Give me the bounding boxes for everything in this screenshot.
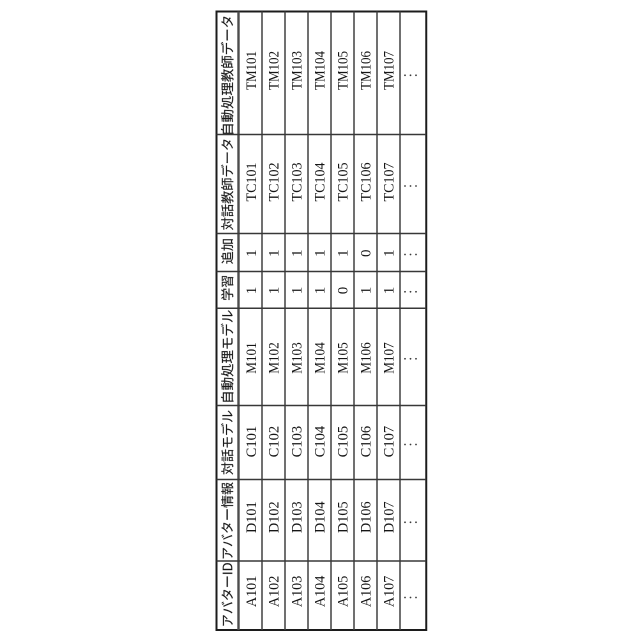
svg-text:M103: M103 [289,342,305,374]
svg-text:M101: M101 [244,342,260,374]
svg-text:A101: A101 [244,576,260,608]
svg-text:TC102: TC102 [266,163,282,202]
svg-text:1: 1 [381,287,397,295]
svg-text:D106: D106 [358,501,374,533]
svg-text:1: 1 [244,249,260,257]
svg-text:1: 1 [289,287,305,295]
svg-text:C103: C103 [289,426,305,458]
svg-text:D105: D105 [335,501,351,533]
svg-text:D101: D101 [244,501,260,533]
svg-text:C102: C102 [266,426,282,458]
svg-text:A104: A104 [312,575,328,607]
svg-text:TM105: TM105 [335,51,351,90]
svg-text:A103: A103 [289,576,305,608]
svg-text:0: 0 [335,287,351,295]
svg-text:C107: C107 [381,425,397,457]
svg-text:TC104: TC104 [312,162,328,201]
svg-text:A107: A107 [381,575,397,607]
svg-text:C105: C105 [335,426,351,458]
svg-text:D103: D103 [289,501,305,533]
svg-text:TM103: TM103 [289,51,305,90]
svg-text:TM106: TM106 [358,51,374,90]
svg-text:1: 1 [381,249,397,257]
svg-text:1: 1 [358,287,374,295]
svg-text:TM102: TM102 [266,51,282,90]
svg-text:M102: M102 [266,342,282,374]
svg-text:TC105: TC105 [335,163,351,202]
svg-text:C104: C104 [312,425,328,457]
svg-text:C101: C101 [244,426,260,458]
svg-text:A106: A106 [358,575,374,607]
svg-text:1: 1 [244,287,260,295]
svg-text:TC103: TC103 [289,163,305,202]
svg-text:M104: M104 [312,342,328,374]
svg-text:TC107: TC107 [381,162,397,201]
svg-text:D107: D107 [381,501,397,533]
svg-text:1: 1 [266,287,282,295]
svg-text:TM104: TM104 [312,51,328,90]
svg-text:M105: M105 [335,342,351,374]
svg-text:C106: C106 [358,425,374,457]
svg-text:A102: A102 [266,576,282,608]
svg-text:TM107: TM107 [381,51,397,90]
svg-text:M107: M107 [381,342,397,374]
svg-text:1: 1 [312,287,328,295]
svg-text:A105: A105 [335,576,351,608]
svg-text:TC106: TC106 [358,162,374,201]
svg-text:TC101: TC101 [244,163,260,202]
svg-text:0: 0 [358,249,374,257]
svg-text:1: 1 [312,249,328,257]
svg-text:1: 1 [266,249,282,257]
svg-text:TM101: TM101 [244,51,260,90]
svg-text:D104: D104 [312,501,328,533]
svg-text:D102: D102 [266,501,282,533]
svg-text:1: 1 [335,249,351,257]
svg-text:1: 1 [289,249,305,257]
svg-text:M106: M106 [358,342,374,374]
